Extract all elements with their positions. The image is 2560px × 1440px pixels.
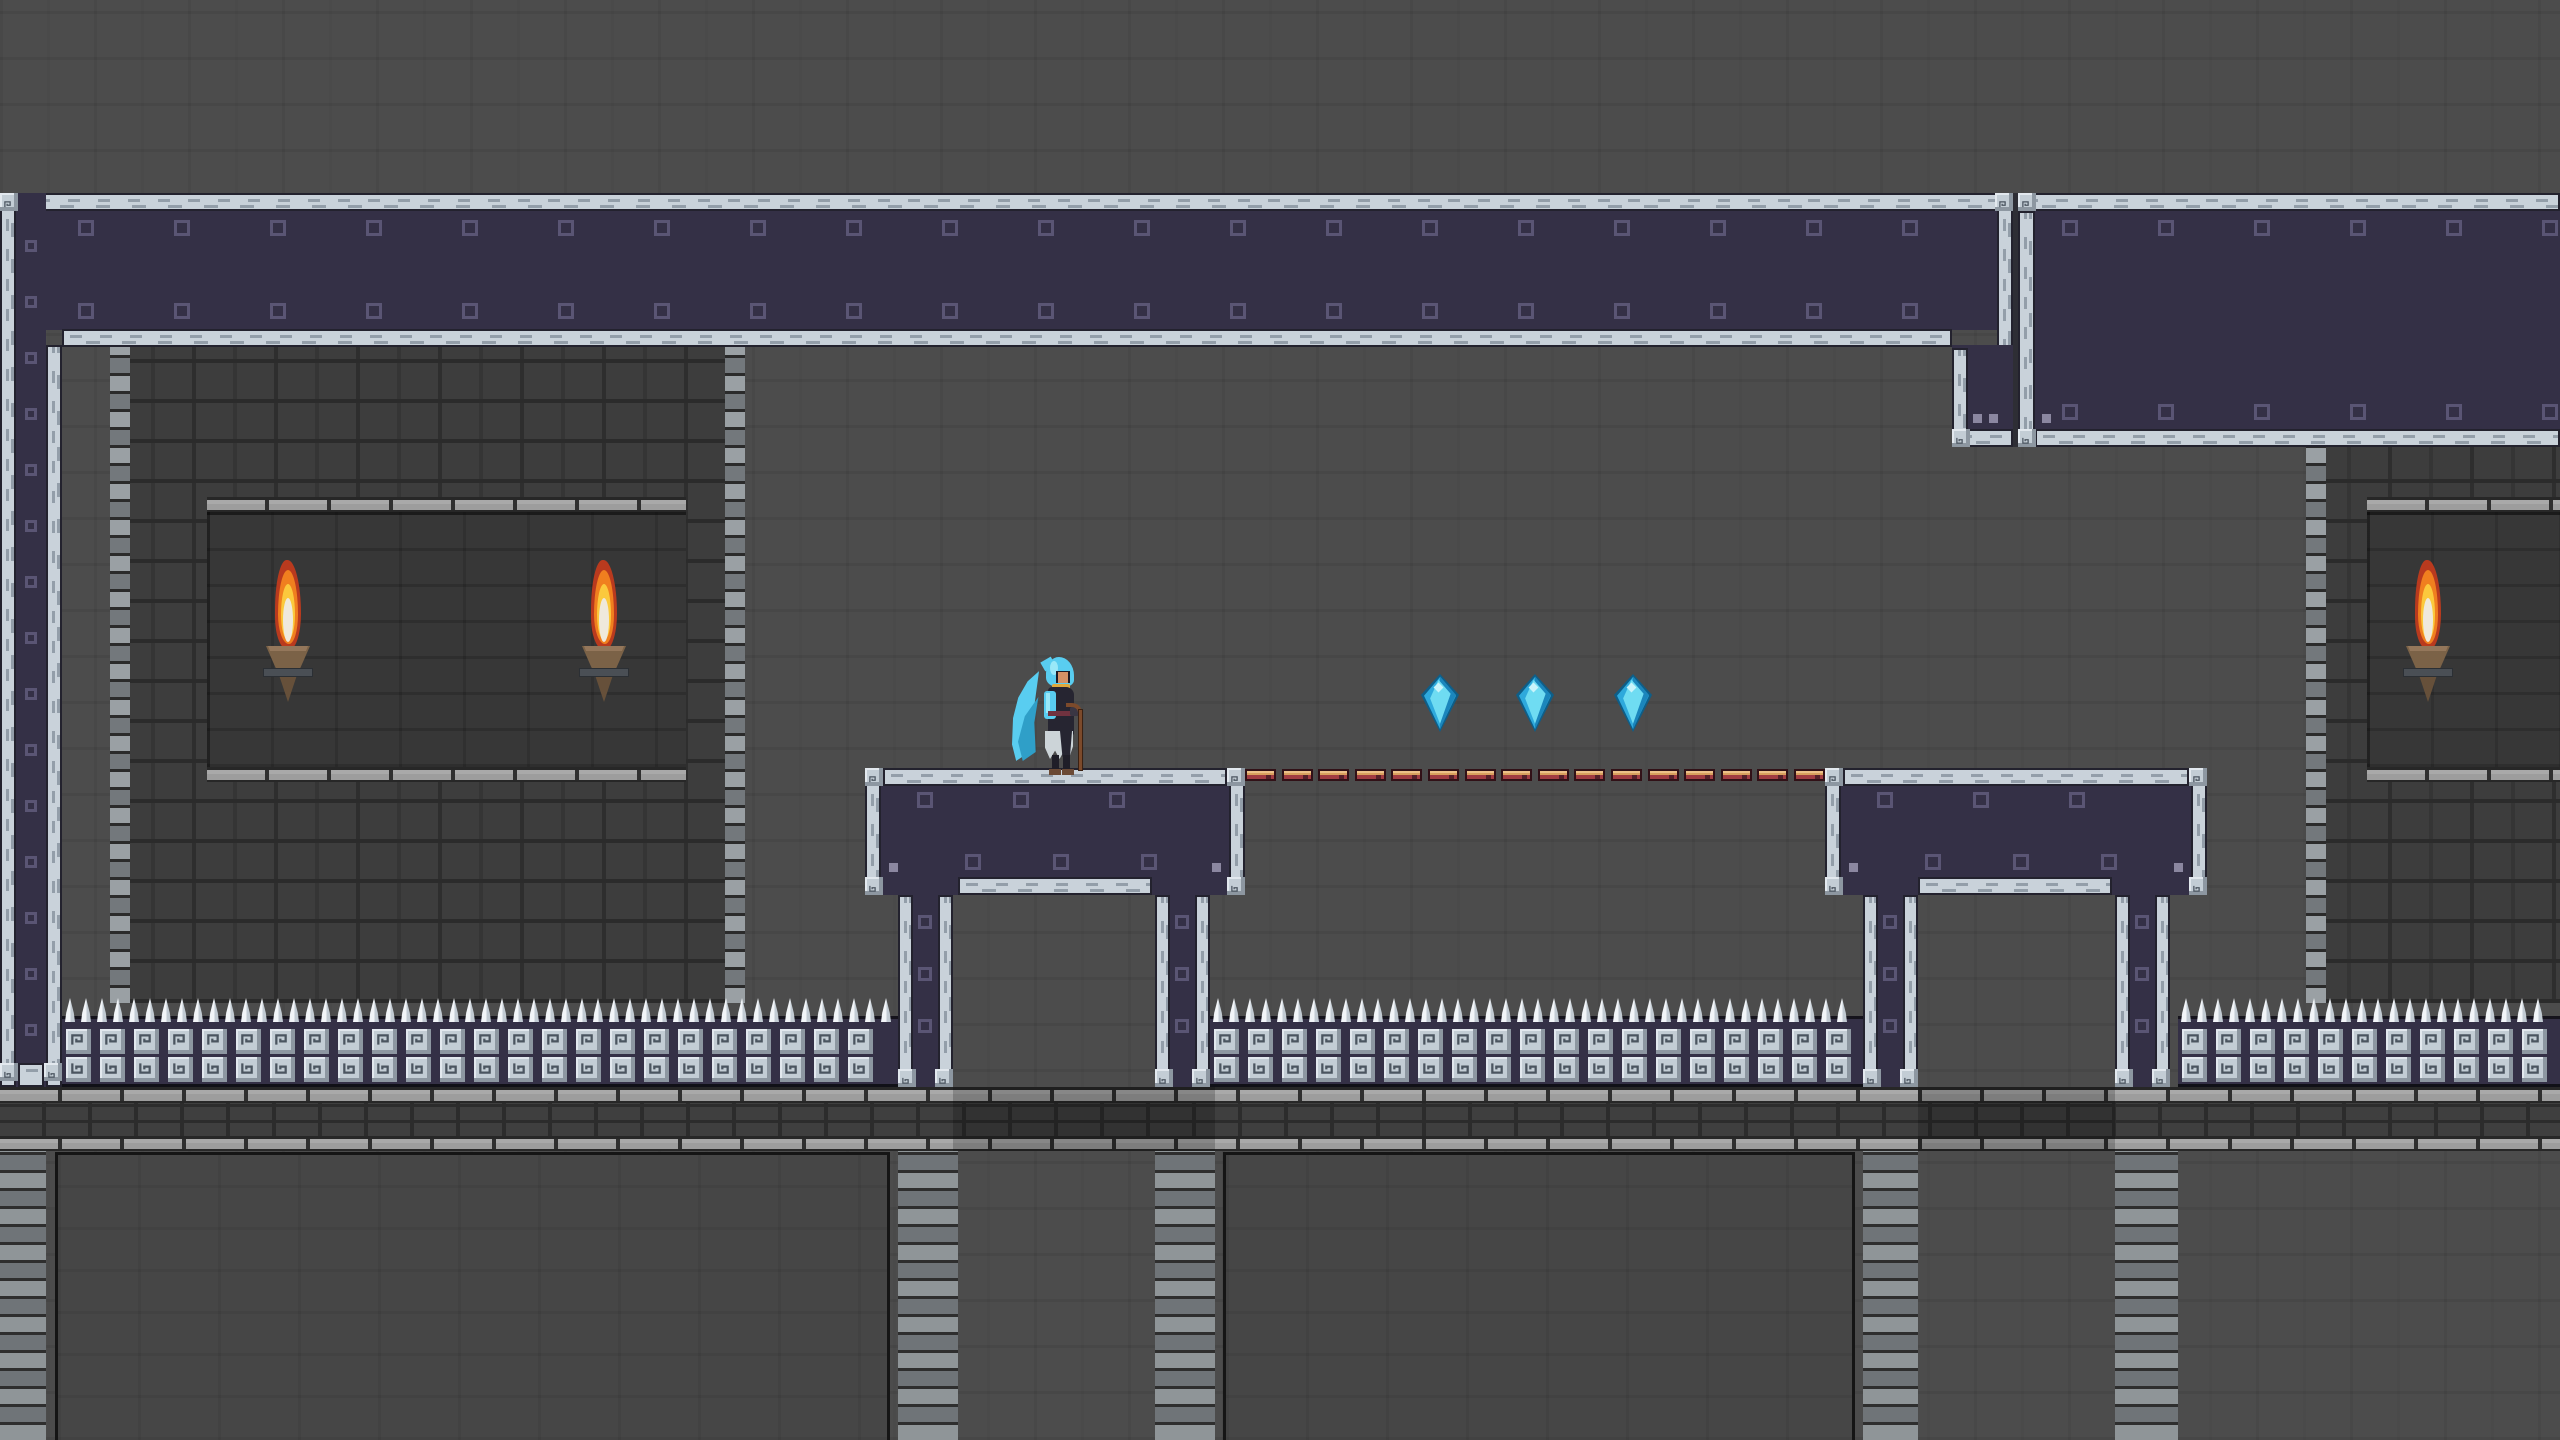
greek-key-glyph-icon <box>2423 1060 2439 1076</box>
greek-key-tile <box>168 1057 193 1082</box>
greek-key-tile <box>1656 1029 1681 1054</box>
platform-leg-beam <box>2115 895 2130 1087</box>
bridge-bar-notch <box>1266 775 1271 779</box>
greek-key-glyph-icon <box>817 1032 833 1048</box>
greek-key-glyph-icon <box>1727 1060 1743 1076</box>
greek-key-tile <box>2115 1069 2133 1087</box>
greek-key-glyph-icon <box>1693 1032 1709 1048</box>
stud <box>2350 220 2366 236</box>
bridge-bar[interactable] <box>1391 769 1422 781</box>
greek-key-glyph-icon <box>511 1060 527 1076</box>
greek-key-tile <box>134 1029 159 1054</box>
greek-key-glyph-icon <box>1829 1032 1845 1048</box>
stud <box>270 220 286 236</box>
greek-key-glyph-icon <box>647 1060 663 1076</box>
stud-small <box>889 863 898 872</box>
bridge-bar[interactable] <box>1355 769 1386 781</box>
stud <box>25 296 37 308</box>
greek-key-tile <box>1282 1057 1307 1082</box>
greek-key-glyph-icon <box>545 1032 561 1048</box>
stud <box>25 688 37 700</box>
window-ledge <box>207 497 686 512</box>
stud-small <box>2174 863 2183 872</box>
greek-key-tile <box>236 1057 261 1082</box>
bridge-bar[interactable] <box>1465 769 1496 781</box>
fence-spike-icon <box>1581 998 1591 1022</box>
greek-key-tile <box>814 1057 839 1082</box>
greek-key-tile <box>2182 1057 2207 1082</box>
greek-key-glyph-icon <box>2155 1072 2164 1081</box>
stud <box>25 744 37 756</box>
greek-key-tile <box>372 1029 397 1054</box>
greek-key-glyph-icon <box>2355 1060 2371 1076</box>
greek-key-glyph-icon <box>1828 771 1837 780</box>
bridge-bar[interactable] <box>1538 769 1569 781</box>
greek-key-tile <box>44 1063 62 1081</box>
stud <box>25 408 37 420</box>
game-viewport[interactable] <box>0 0 2560 1440</box>
greek-key-tile <box>2318 1029 2343 1054</box>
greek-key-tile <box>1758 1057 1783 1082</box>
greek-key-tile <box>474 1057 499 1082</box>
stud <box>366 303 382 319</box>
fence-spike-icon <box>1341 998 1351 1022</box>
greek-key-glyph-icon <box>1866 1072 1875 1081</box>
stud <box>1710 303 1726 319</box>
greek-key-glyph-icon <box>69 1032 85 1048</box>
pillar-beam <box>46 345 62 1087</box>
bridge-bar[interactable] <box>1794 769 1825 781</box>
greek-key-glyph-icon <box>443 1032 459 1048</box>
ceiling-panel <box>2035 211 2560 429</box>
greek-key-tile <box>848 1029 873 1054</box>
torch-flame-core <box>2423 598 2433 642</box>
greek-key-glyph-icon <box>1387 1032 1403 1048</box>
player-staff <box>1078 709 1083 771</box>
stud <box>2062 404 2078 420</box>
stone-ledge <box>0 1087 2560 1103</box>
player-character[interactable] <box>1012 657 1090 775</box>
stud <box>1614 220 1630 236</box>
stud <box>25 1024 37 1036</box>
fence-spike-icon <box>2261 998 2271 1022</box>
fence-spike-icon <box>1485 998 1495 1022</box>
greek-key-tile <box>610 1029 635 1054</box>
greek-key-glyph-icon <box>307 1032 323 1048</box>
greek-key-glyph-icon <box>273 1032 289 1048</box>
platform-leg-beam <box>938 895 953 1087</box>
crystal-gem[interactable] <box>1421 674 1459 732</box>
greek-key-tile <box>1622 1029 1647 1054</box>
greek-key-tile <box>1248 1057 1273 1082</box>
greek-key-tile <box>134 1057 159 1082</box>
stud <box>2135 1019 2149 1033</box>
bridge-bar-notch <box>1559 775 1564 779</box>
fence-spike-icon <box>1549 998 1559 1022</box>
brick-column <box>1863 1151 1918 1440</box>
stud <box>1902 303 1918 319</box>
stud <box>25 240 37 252</box>
greek-key-glyph-icon <box>1625 1060 1641 1076</box>
fence-spike-icon <box>1357 998 1367 1022</box>
greek-key-glyph-icon <box>1353 1060 1369 1076</box>
greek-key-glyph-icon <box>1903 1072 1912 1081</box>
bridge-bar[interactable] <box>1318 769 1349 781</box>
platform-beam-bottom <box>958 877 1152 895</box>
greek-key-glyph-icon <box>783 1060 799 1076</box>
fence-spike-icon <box>1741 998 1751 1022</box>
bridge-bar[interactable] <box>1648 769 1679 781</box>
bridge-bar-notch <box>1522 775 1527 779</box>
bridge-bar-notch <box>1412 775 1417 779</box>
greek-key-tile <box>898 1069 916 1087</box>
stud <box>1806 303 1822 319</box>
platform-beam-side <box>865 768 881 895</box>
greek-key-glyph-icon <box>69 1060 85 1076</box>
greek-key-tile <box>440 1057 465 1082</box>
fence-spike-icon <box>1725 998 1735 1022</box>
greek-key-glyph-icon <box>1230 880 1239 889</box>
greek-key-glyph-icon <box>715 1060 731 1076</box>
stud <box>1877 792 1893 808</box>
greek-key-tile <box>304 1029 329 1054</box>
wall-quoin <box>110 345 130 1003</box>
greek-key-tile <box>780 1029 805 1054</box>
stud <box>462 303 478 319</box>
greek-key-tile <box>1758 1029 1783 1054</box>
platform-beam-side <box>1825 768 1841 895</box>
greek-key-glyph-icon <box>1955 432 1964 441</box>
fence-spike-icon <box>1661 998 1671 1022</box>
stud <box>78 220 94 236</box>
fence-spike-icon <box>1293 998 1303 1022</box>
greek-key-tile <box>678 1029 703 1054</box>
greek-key-glyph-icon <box>2192 880 2201 889</box>
stone-ledge <box>0 1136 2560 1151</box>
stud <box>558 303 574 319</box>
fence-spike-icon <box>849 998 859 1022</box>
greek-key-tile <box>1826 1029 1851 1054</box>
greek-key-tile <box>2352 1029 2377 1054</box>
greek-key-tile <box>1724 1057 1749 1082</box>
platform-leg-beam <box>1195 895 1210 1087</box>
stud <box>78 303 94 319</box>
greek-key-tile <box>865 877 883 895</box>
stud <box>1175 1019 1189 1033</box>
greek-key-tile <box>2250 1057 2275 1082</box>
bridge-bar[interactable] <box>1721 769 1752 781</box>
bridge-bar[interactable] <box>1684 769 1715 781</box>
stud <box>1518 220 1534 236</box>
greek-key-tile <box>2386 1029 2411 1054</box>
greek-key-tile <box>848 1057 873 1082</box>
greek-key-glyph-icon <box>375 1060 391 1076</box>
stud <box>2135 915 2149 929</box>
stud <box>942 303 958 319</box>
greek-key-tile <box>746 1057 771 1082</box>
player-boot <box>1062 769 1074 775</box>
player-boot <box>1049 769 1061 775</box>
greek-key-glyph-icon <box>2192 771 2201 780</box>
greek-key-tile <box>372 1057 397 1082</box>
greek-key-glyph-icon <box>1795 1032 1811 1048</box>
greek-key-glyph-icon <box>579 1032 595 1048</box>
greek-key-tile <box>1316 1057 1341 1082</box>
stud <box>1883 1019 1897 1033</box>
stud <box>1134 220 1150 236</box>
bridge-bar-notch <box>1632 775 1637 779</box>
wall-torch <box>582 560 626 702</box>
greek-key-tile <box>1826 1057 1851 1082</box>
greek-key-glyph-icon <box>1230 771 1239 780</box>
greek-key-glyph-icon <box>1523 1060 1539 1076</box>
fence-spike-icon <box>1421 998 1431 1022</box>
greek-key-tile <box>1588 1029 1613 1054</box>
greek-key-glyph-icon <box>1727 1032 1743 1048</box>
brick-column <box>1155 1151 1215 1440</box>
stud <box>2158 220 2174 236</box>
wall-torch <box>2406 560 2450 702</box>
fence-spike-icon <box>1773 998 1783 1022</box>
greek-key-glyph-icon <box>1158 1072 1167 1081</box>
bridge-bar[interactable] <box>1574 769 1605 781</box>
torch-cup-rim <box>268 646 308 651</box>
stud <box>942 220 958 236</box>
stud <box>25 632 37 644</box>
greek-key-glyph-icon <box>511 1032 527 1048</box>
stud <box>25 576 37 588</box>
greek-key-tile <box>338 1029 363 1054</box>
greek-key-glyph-icon <box>1625 1032 1641 1048</box>
ceiling-beam <box>0 193 2013 211</box>
greek-key-tile <box>2284 1029 2309 1054</box>
greek-key-tile <box>100 1029 125 1054</box>
greek-key-tile <box>1384 1057 1409 1082</box>
player-sleeve-highlight <box>1046 693 1050 713</box>
stud <box>270 303 286 319</box>
fence-spike-icon <box>1709 998 1719 1022</box>
greek-key-tile <box>2216 1057 2241 1082</box>
fence-spike-icon <box>65 998 75 1022</box>
greek-key-glyph-icon <box>2525 1032 2541 1048</box>
stud <box>1053 854 1069 870</box>
fence-spike-icon <box>1501 998 1511 1022</box>
greek-key-tile <box>2420 1029 2445 1054</box>
greek-key-tile <box>1282 1029 1307 1054</box>
greek-key-tile <box>1952 429 1970 447</box>
window-recess <box>2367 512 2560 767</box>
bridge-bar-notch <box>1778 775 1783 779</box>
greek-key-tile <box>2522 1057 2547 1082</box>
torch-cup-rim <box>584 646 624 651</box>
stud <box>2135 967 2149 981</box>
platform-leg-beam <box>898 895 913 1087</box>
bridge-bar[interactable] <box>1501 769 1532 781</box>
bridge-bar[interactable] <box>1245 769 1276 781</box>
greek-key-glyph-icon <box>1217 1032 1233 1048</box>
torch-flame-core <box>599 598 609 642</box>
greek-key-glyph-icon <box>2021 196 2030 205</box>
greek-key-tile <box>542 1057 567 1082</box>
bridge-bar[interactable] <box>1757 769 1788 781</box>
greek-key-tile <box>1316 1029 1341 1054</box>
greek-key-tile <box>1350 1029 1375 1054</box>
stud-small <box>2042 414 2051 423</box>
greek-key-tile <box>2454 1057 2479 1082</box>
torch-bracket <box>2403 668 2453 677</box>
greek-key-tile <box>1452 1057 1477 1082</box>
fence-spike-icon <box>81 998 91 1022</box>
greek-key-tile <box>1227 768 1245 786</box>
greek-key-glyph-icon <box>2253 1060 2269 1076</box>
greek-key-tile <box>0 1063 18 1081</box>
greek-key-glyph-icon <box>1998 196 2007 205</box>
fence-spike-icon <box>1389 998 1399 1022</box>
greek-key-tile <box>168 1029 193 1054</box>
fence-spike-icon <box>1613 998 1623 1022</box>
stud <box>750 220 766 236</box>
greek-key-glyph-icon <box>1829 1060 1845 1076</box>
greek-key-glyph-icon <box>409 1032 425 1048</box>
fence-spike-icon <box>1533 998 1543 1022</box>
torch-bracket <box>579 668 629 677</box>
greek-key-tile <box>2284 1057 2309 1082</box>
greek-key-glyph-icon <box>307 1060 323 1076</box>
stud <box>2350 404 2366 420</box>
greek-key-glyph-icon <box>1251 1032 1267 1048</box>
fence-spike-icon <box>1309 998 1319 1022</box>
greek-key-tile <box>2216 1029 2241 1054</box>
wall-torch <box>266 560 310 702</box>
stud <box>558 220 574 236</box>
fence-spike-icon <box>1453 998 1463 1022</box>
greek-key-glyph-icon <box>2525 1060 2541 1076</box>
stud <box>25 352 37 364</box>
greek-key-tile <box>1554 1057 1579 1082</box>
fence-spike-icon <box>2213 998 2223 1022</box>
bridge-bar-notch <box>1595 775 1600 779</box>
floor-panel <box>1223 1152 1855 1440</box>
greek-key-glyph-icon <box>1557 1060 1573 1076</box>
stud <box>1710 220 1726 236</box>
stud <box>1134 303 1150 319</box>
greek-key-glyph-icon <box>2491 1060 2507 1076</box>
wall-quoin <box>2306 443 2326 1003</box>
greek-key-glyph-icon <box>477 1060 493 1076</box>
window-ledge <box>2367 497 2560 512</box>
stud <box>1141 854 1157 870</box>
greek-key-glyph-icon <box>647 1032 663 1048</box>
stud <box>1925 854 1941 870</box>
bridge-bar-notch <box>1449 775 1454 779</box>
stud <box>25 968 37 980</box>
bridge-bar[interactable] <box>1611 769 1642 781</box>
greek-key-glyph-icon <box>1489 1060 1505 1076</box>
bridge-bar-notch <box>1486 775 1491 779</box>
ledge-shadow <box>953 1087 1215 1151</box>
ceiling-beam <box>2018 211 2035 447</box>
greek-key-glyph-icon <box>171 1032 187 1048</box>
fence-spike-icon <box>785 998 795 1022</box>
pillar-beam <box>18 1063 44 1087</box>
platform-beam-top[interactable] <box>1843 768 2189 786</box>
greek-key-glyph-icon <box>2287 1060 2303 1076</box>
fence-spike-icon <box>753 998 763 1022</box>
greek-key-tile <box>406 1057 431 1082</box>
greek-key-glyph-icon <box>1319 1060 1335 1076</box>
stud <box>918 1019 932 1033</box>
greek-key-tile <box>1248 1029 1273 1054</box>
stud <box>2254 220 2270 236</box>
platform-beam-bottom <box>1918 877 2112 895</box>
stud <box>1326 220 1342 236</box>
stud <box>174 220 190 236</box>
fence-spike-icon <box>2293 998 2303 1022</box>
greek-key-glyph-icon <box>1523 1032 1539 1048</box>
ceiling-beam <box>2018 193 2560 211</box>
greek-key-glyph-icon <box>239 1032 255 1048</box>
greek-key-glyph-icon <box>2219 1060 2235 1076</box>
greek-key-glyph-icon <box>1761 1032 1777 1048</box>
wall-quoin <box>725 345 745 1003</box>
greek-key-glyph-icon <box>715 1032 731 1048</box>
greek-key-glyph-icon <box>749 1032 765 1048</box>
greek-key-glyph-icon <box>1761 1060 1777 1076</box>
greek-key-glyph-icon <box>2457 1032 2473 1048</box>
platform-leg-beam <box>1863 895 1878 1087</box>
player-face <box>1058 672 1068 683</box>
greek-key-tile <box>1214 1057 1239 1082</box>
bridge-bar-notch <box>1815 775 1820 779</box>
greek-key-tile <box>100 1057 125 1082</box>
greek-key-glyph-icon <box>171 1060 187 1076</box>
greek-key-glyph-icon <box>273 1060 289 1076</box>
greek-key-tile <box>2318 1057 2343 1082</box>
crystal-gem[interactable] <box>1516 674 1554 732</box>
greek-key-tile <box>610 1057 635 1082</box>
greek-key-tile <box>1192 1069 1210 1087</box>
greek-key-tile <box>304 1057 329 1082</box>
bridge-bar-notch <box>1376 775 1381 779</box>
greek-key-tile <box>814 1029 839 1054</box>
greek-key-tile <box>2488 1057 2513 1082</box>
greek-key-tile <box>576 1029 601 1054</box>
greek-key-tile <box>1227 877 1245 895</box>
bridge-bar[interactable] <box>1282 769 1313 781</box>
ledge-shadow <box>1918 1087 2115 1151</box>
greek-key-glyph-icon <box>3 196 12 205</box>
stud <box>846 220 862 236</box>
greek-key-glyph-icon <box>1828 880 1837 889</box>
fence-spike-icon <box>1405 998 1415 1022</box>
greek-key-glyph-icon <box>901 1072 910 1081</box>
stud <box>654 220 670 236</box>
greek-key-tile <box>1995 193 2013 211</box>
greek-key-glyph-icon <box>443 1060 459 1076</box>
bridge-bar[interactable] <box>1428 769 1459 781</box>
stud <box>1230 303 1246 319</box>
greek-key-tile <box>1656 1057 1681 1082</box>
greek-key-tile <box>66 1029 91 1054</box>
fence-spike-icon <box>97 998 107 1022</box>
greek-key-tile <box>1214 1029 1239 1054</box>
fence-spike-icon <box>1789 998 1799 1022</box>
crystal-gem[interactable] <box>1614 674 1652 732</box>
greek-key-tile <box>644 1029 669 1054</box>
fence-spike-icon <box>1565 998 1575 1022</box>
greek-key-tile <box>1825 877 1843 895</box>
greek-key-glyph-icon <box>47 1066 56 1075</box>
